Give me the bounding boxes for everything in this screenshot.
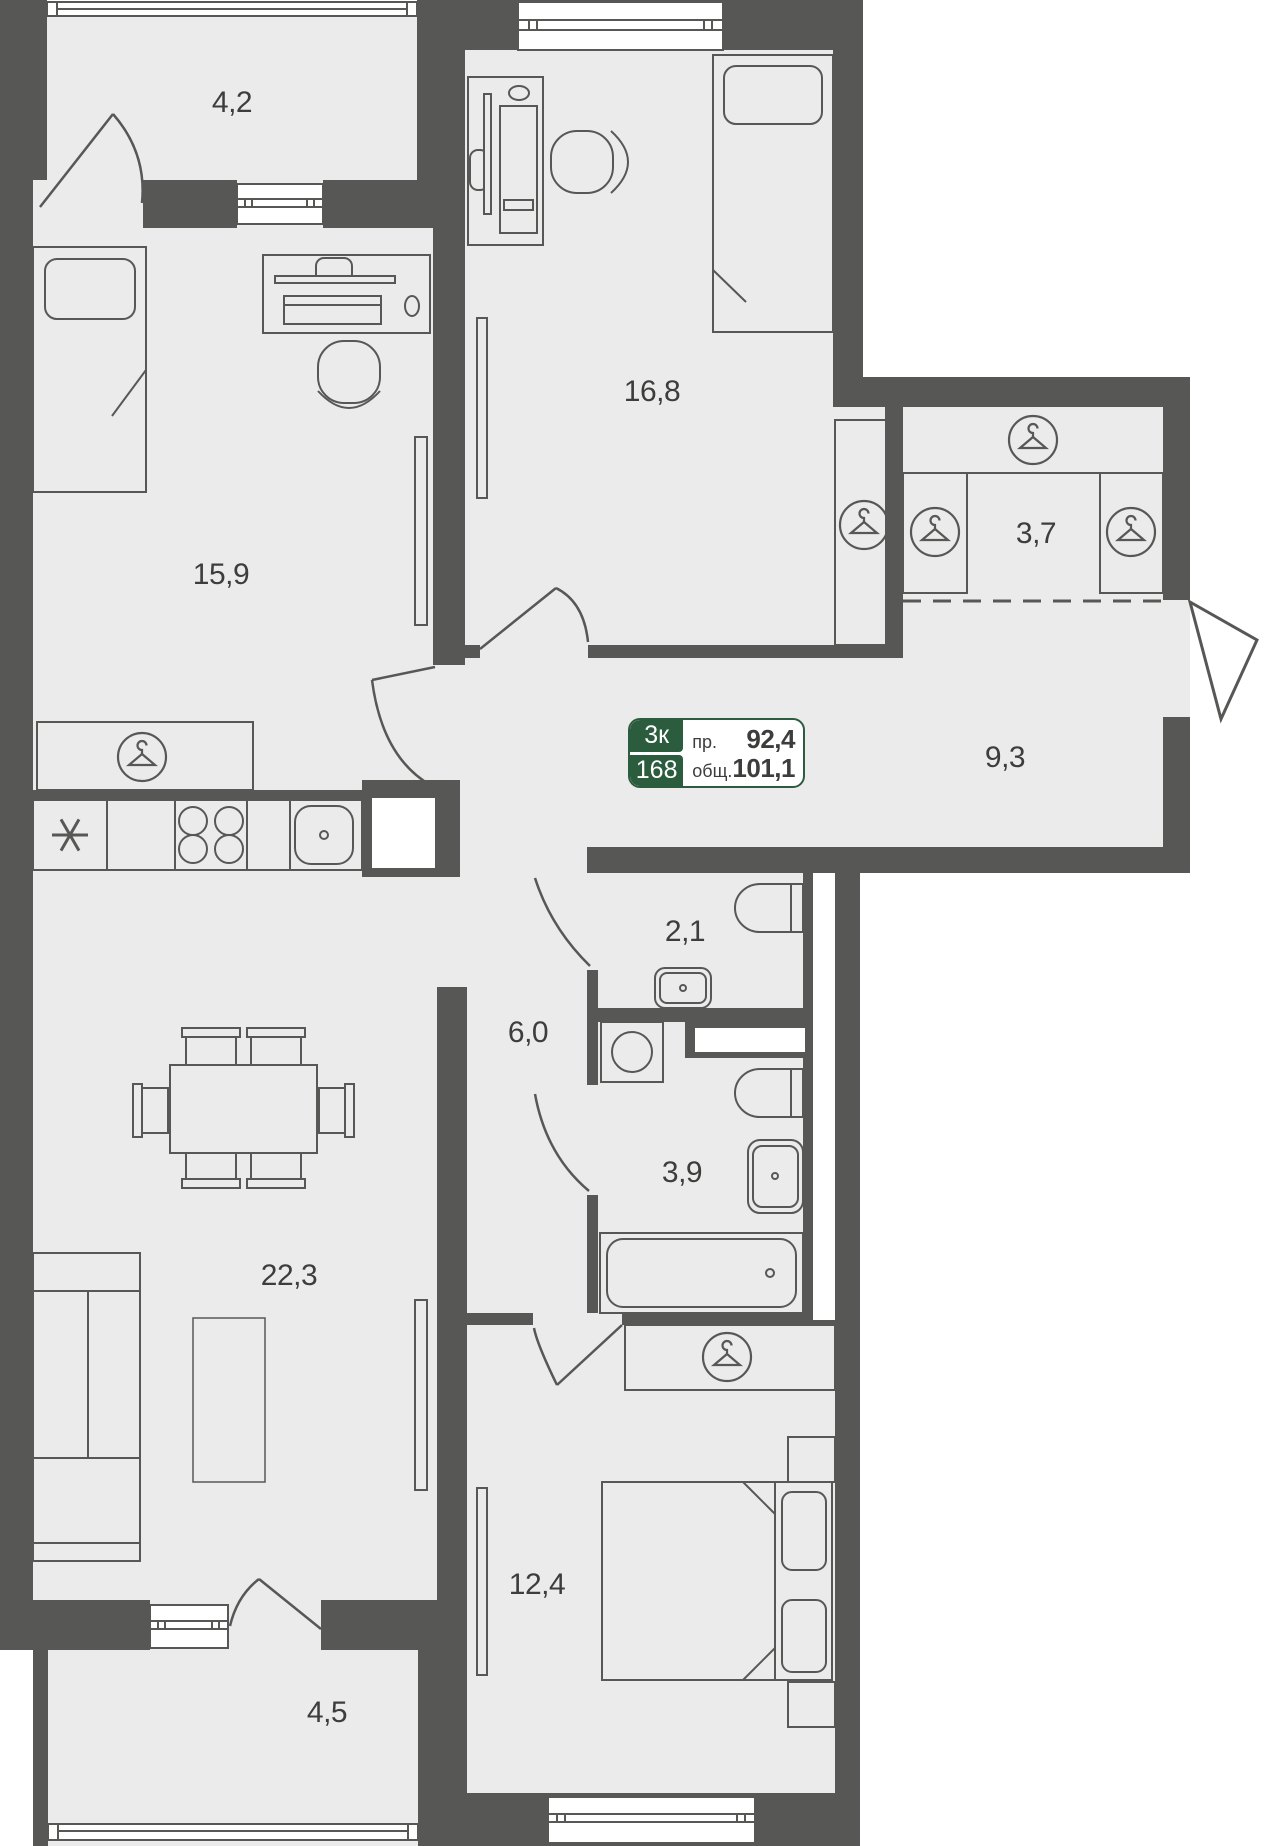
toilet <box>735 884 803 932</box>
toilet <box>735 1069 803 1117</box>
bed <box>713 55 833 332</box>
dining-chair <box>247 1028 305 1065</box>
bed <box>33 247 146 492</box>
dining-table <box>170 1065 317 1153</box>
window <box>48 1824 418 1840</box>
floor-plan-drawing <box>0 0 1283 1846</box>
desk <box>263 255 430 333</box>
bathtub <box>600 1233 803 1313</box>
window <box>518 2 723 50</box>
area-label-balcony-top: 4,2 <box>212 86 252 120</box>
area-label-corridor: 6,0 <box>508 1016 548 1050</box>
apartment-info-card: 3к 168 пр. 92,4 общ. 101,1 <box>628 718 805 788</box>
projected-area-value: 92,4 <box>746 726 795 752</box>
area-label-bathroom: 3,9 <box>662 1156 702 1190</box>
window <box>47 2 417 16</box>
dining-chair <box>319 1084 354 1137</box>
dining-chair <box>133 1084 168 1137</box>
area-label-hallway: 9,3 <box>985 741 1025 775</box>
office-chair <box>318 341 380 408</box>
projected-area-label: пр. <box>692 733 717 751</box>
double-bed <box>602 1482 832 1680</box>
vent-shaft <box>695 1028 805 1052</box>
dining-chair <box>247 1153 305 1188</box>
info-card-areas: пр. 92,4 общ. 101,1 <box>683 720 803 786</box>
window <box>150 1605 228 1648</box>
area-label-bedroom-left: 15,9 <box>193 558 249 592</box>
total-area-value: 101,1 <box>732 755 795 781</box>
floor-plan: 4,2 15,9 16,8 3,7 9,3 2,1 6,0 3,9 22,3 1… <box>0 0 1283 1846</box>
wash-basin <box>655 968 711 1008</box>
area-label-bedroom-bottom: 12,4 <box>509 1568 565 1602</box>
area-label-living-room: 22,3 <box>261 1259 317 1293</box>
area-label-balcony-bottom: 4,5 <box>307 1696 347 1730</box>
total-area-label: общ. <box>692 762 732 780</box>
nightstand <box>788 1682 835 1727</box>
washing-machine <box>601 1022 663 1082</box>
desk <box>468 77 543 245</box>
sofa <box>33 1253 140 1561</box>
wash-basin <box>748 1140 803 1213</box>
vent-shaft <box>813 873 835 1320</box>
dining-chair <box>182 1153 240 1188</box>
area-label-wc: 2,1 <box>665 915 705 949</box>
unit-number-badge: 168 <box>630 755 683 787</box>
dining-chair <box>182 1028 240 1065</box>
area-label-bedroom-top: 16,8 <box>624 375 680 409</box>
window <box>548 1797 755 1843</box>
nightstand <box>788 1437 835 1482</box>
vent-shaft <box>372 798 435 868</box>
window <box>237 184 323 224</box>
area-label-wardrobe: 3,7 <box>1016 517 1056 551</box>
info-card-green-column: 3к 168 <box>630 720 683 786</box>
rooms-count-badge: 3к <box>630 720 683 752</box>
